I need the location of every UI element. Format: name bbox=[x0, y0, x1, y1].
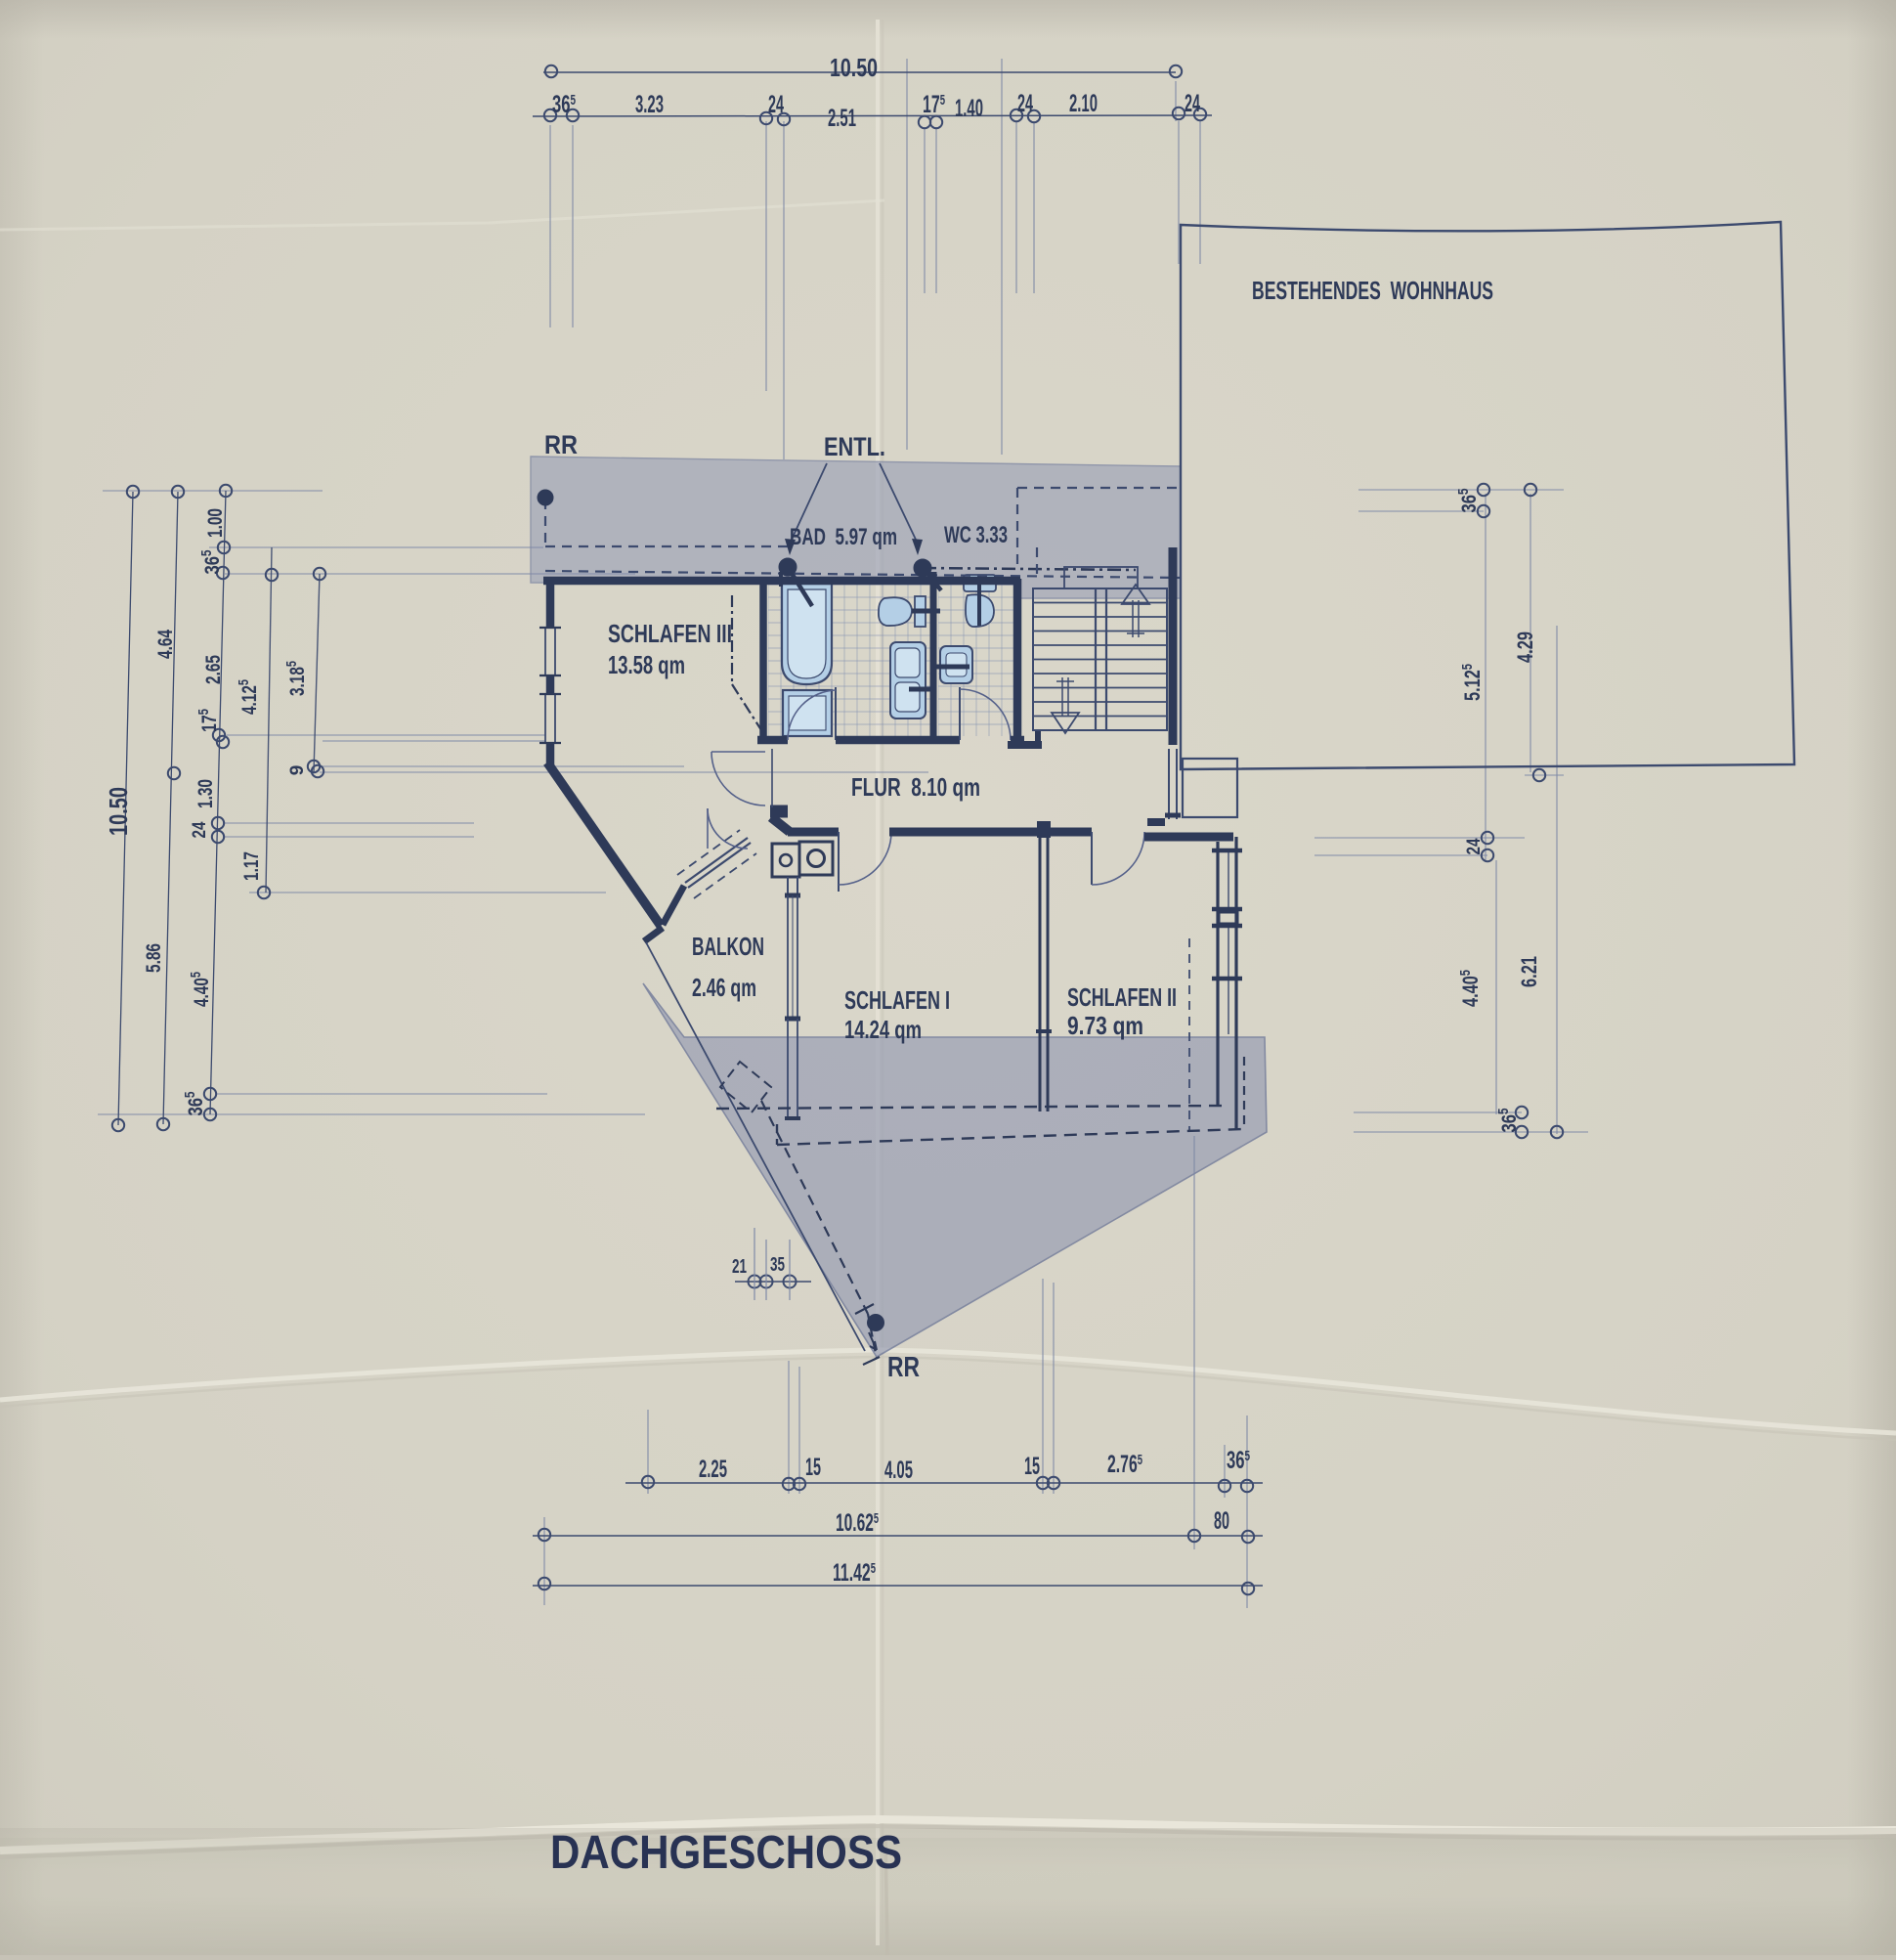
svg-text:2.65: 2.65 bbox=[202, 655, 225, 684]
svg-text:9.73 qm: 9.73 qm bbox=[1067, 1011, 1143, 1040]
svg-text:15: 15 bbox=[1024, 1453, 1040, 1480]
svg-text:4.64: 4.64 bbox=[154, 630, 177, 659]
svg-text:1.00: 1.00 bbox=[204, 508, 227, 538]
svg-text:80: 80 bbox=[1214, 1507, 1229, 1535]
svg-text:35: 35 bbox=[770, 1254, 785, 1276]
svg-text:9: 9 bbox=[287, 765, 308, 776]
svg-text:BESTEHENDES WOHNHAUS: BESTEHENDES WOHNHAUS bbox=[1252, 276, 1493, 305]
svg-text:5.86: 5.86 bbox=[143, 943, 165, 973]
svg-text:24: 24 bbox=[1017, 90, 1033, 117]
svg-text:13.58 qm: 13.58 qm bbox=[608, 650, 685, 679]
svg-text:11.425: 11.425 bbox=[833, 1559, 876, 1587]
svg-text:10.625: 10.625 bbox=[836, 1509, 879, 1537]
svg-text:15: 15 bbox=[805, 1454, 821, 1481]
svg-text:24: 24 bbox=[768, 91, 784, 118]
svg-text:2.51: 2.51 bbox=[828, 105, 856, 132]
svg-text:1.40: 1.40 bbox=[955, 95, 983, 122]
svg-text:WC 3.33: WC 3.33 bbox=[944, 522, 1008, 548]
svg-text:BALKON: BALKON bbox=[692, 932, 764, 961]
svg-text:RR: RR bbox=[544, 430, 578, 459]
svg-text:2.765: 2.765 bbox=[1107, 1451, 1142, 1478]
svg-text:2.10: 2.10 bbox=[1069, 90, 1098, 117]
svg-text:4.05: 4.05 bbox=[884, 1457, 913, 1484]
svg-text:24: 24 bbox=[190, 821, 210, 838]
svg-text:ENTL.: ENTL. bbox=[824, 432, 885, 461]
svg-text:4.29: 4.29 bbox=[1513, 632, 1537, 663]
svg-text:1.17: 1.17 bbox=[240, 851, 263, 881]
svg-text:10.50: 10.50 bbox=[830, 53, 878, 82]
svg-text:2.25: 2.25 bbox=[699, 1456, 727, 1483]
svg-text:SCHLAFEN I: SCHLAFEN I bbox=[844, 985, 950, 1015]
svg-text:24: 24 bbox=[1464, 838, 1485, 854]
svg-text:1.30: 1.30 bbox=[194, 779, 217, 808]
svg-text:DACHGESCHOSS: DACHGESCHOSS bbox=[550, 1827, 902, 1879]
svg-text:21: 21 bbox=[732, 1256, 747, 1278]
svg-text:24: 24 bbox=[1185, 90, 1200, 117]
svg-text:3.23: 3.23 bbox=[635, 91, 664, 118]
svg-text:2.46 qm: 2.46 qm bbox=[692, 973, 756, 1002]
svg-text:6.21: 6.21 bbox=[1517, 956, 1541, 987]
svg-text:RR: RR bbox=[887, 1352, 920, 1383]
svg-text:14.24 qm: 14.24 qm bbox=[844, 1015, 922, 1044]
svg-text:BAD 5.97 qm: BAD 5.97 qm bbox=[790, 524, 897, 550]
svg-text:SCHLAFEN III: SCHLAFEN III bbox=[608, 619, 732, 648]
svg-text:FLUR 8.10 qm: FLUR 8.10 qm bbox=[851, 772, 980, 802]
svg-text:10.50: 10.50 bbox=[104, 787, 133, 836]
svg-text:SCHLAFEN II: SCHLAFEN II bbox=[1067, 982, 1177, 1012]
